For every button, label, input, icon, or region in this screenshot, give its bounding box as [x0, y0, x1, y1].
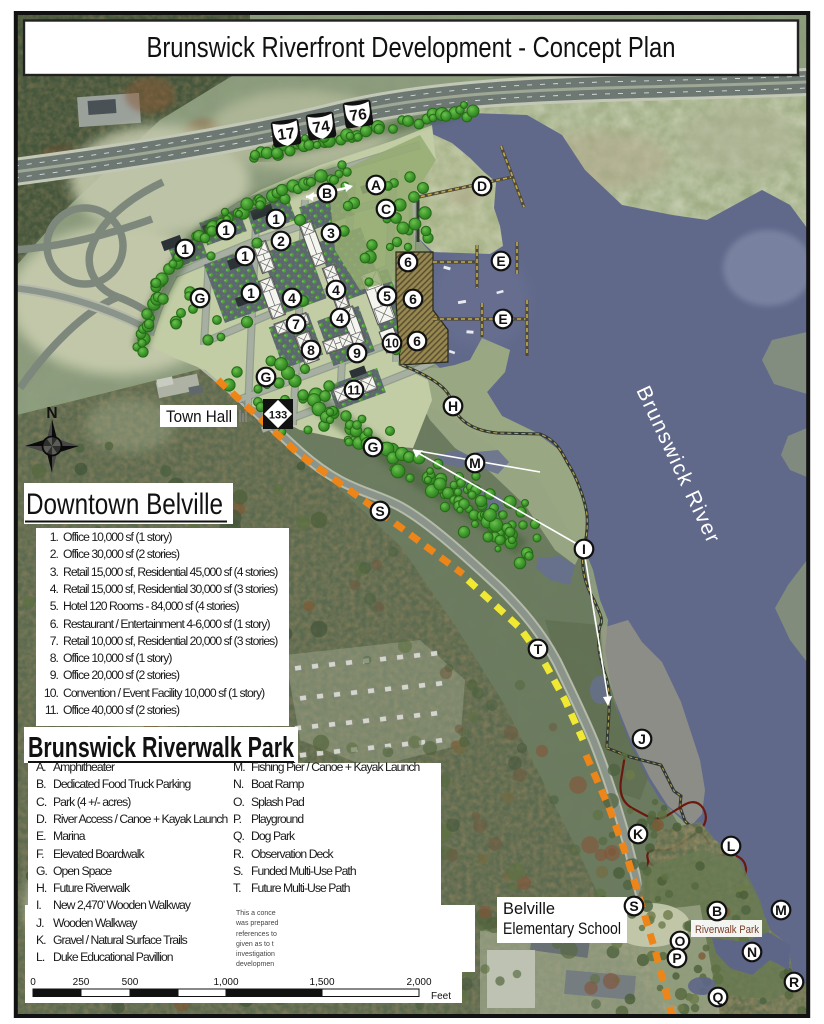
svg-text:New 2,470’ Wooden Walkway: New 2,470’ Wooden Walkway [53, 898, 192, 912]
svg-text:6: 6 [409, 291, 417, 307]
svg-text:9.: 9. [50, 668, 59, 682]
svg-text:E: E [496, 253, 505, 269]
svg-text:4.: 4. [50, 582, 59, 596]
svg-text:11.: 11. [45, 703, 59, 717]
svg-text:D: D [477, 178, 487, 194]
svg-text:Hotel 120 Rooms - 84,000 sf (4: Hotel 120 Rooms - 84,000 sf (4 stories) [63, 599, 240, 613]
svg-text:2: 2 [277, 233, 285, 249]
svg-text:Q: Q [713, 989, 724, 1005]
svg-text:6: 6 [404, 254, 412, 270]
svg-text:J: J [638, 731, 646, 747]
svg-text:Office 20,000 sf (2 stories): Office 20,000 sf (2 stories) [63, 668, 180, 682]
svg-text:C: C [381, 201, 391, 217]
svg-text:Playground: Playground [251, 812, 303, 826]
svg-text:F.: F. [36, 847, 44, 861]
svg-text:B: B [322, 185, 332, 201]
svg-text:4: 4 [332, 282, 340, 298]
svg-text:1: 1 [272, 211, 280, 227]
svg-text:R: R [789, 974, 799, 990]
svg-text:10.: 10. [44, 686, 59, 700]
svg-text:I: I [582, 541, 586, 557]
svg-text:B: B [712, 903, 722, 919]
svg-text:P: P [672, 950, 681, 966]
svg-text:K: K [633, 826, 643, 842]
svg-text:L.: L. [36, 950, 45, 964]
svg-text:8: 8 [307, 342, 315, 358]
svg-text:Downtown Belville: Downtown Belville [26, 488, 223, 521]
svg-text:Convention / Event Facility 10: Convention / Event Facility 10,000 sf (1… [63, 686, 265, 700]
svg-text:Retail 15,000 sf, Residential: Retail 15,000 sf, Residential 45,000 sf … [63, 565, 278, 579]
svg-text:T: T [534, 641, 543, 657]
svg-text:6: 6 [413, 333, 421, 349]
svg-text:I.: I. [36, 898, 41, 912]
svg-text:6.: 6. [50, 617, 59, 631]
svg-text:Office 40,000 sf (2 stories): Office 40,000 sf (2 stories) [63, 703, 180, 717]
svg-text:Amphitheater: Amphitheater [53, 760, 115, 774]
svg-text:references to: references to [236, 931, 277, 938]
svg-text:Open Space: Open Space [53, 864, 112, 878]
svg-text:Dedicated Food Truck Parking: Dedicated Food Truck Parking [53, 777, 191, 791]
svg-text:Office 10,000 sf (1 story): Office 10,000 sf (1 story) [63, 530, 172, 544]
svg-text:N: N [46, 405, 57, 422]
svg-text:C.: C. [36, 795, 47, 809]
svg-text:A.: A. [36, 760, 46, 774]
svg-text:River Access / Canoe + Kayak L: River Access / Canoe + Kayak Launch [53, 812, 228, 826]
svg-text:1: 1 [222, 222, 230, 238]
svg-text:Gravel / Natural Surface Trail: Gravel / Natural Surface Trails [53, 933, 188, 947]
svg-text:9: 9 [353, 345, 361, 361]
svg-text:Future Riverwalk: Future Riverwalk [53, 881, 131, 895]
svg-text:250: 250 [73, 977, 90, 988]
svg-text:T.: T. [233, 881, 241, 895]
svg-text:1,500: 1,500 [309, 977, 334, 988]
svg-text:Retail 10,000 sf, Residential: Retail 10,000 sf, Residential 20,000 sf … [63, 634, 278, 648]
svg-text:3: 3 [327, 225, 335, 241]
svg-text:4: 4 [336, 310, 344, 326]
svg-text:Office 10,000 sf (1 story): Office 10,000 sf (1 story) [63, 651, 172, 665]
svg-text:S: S [629, 898, 638, 914]
svg-text:2.: 2. [50, 547, 59, 561]
svg-text:Retail 15,000 sf, Residential: Retail 15,000 sf, Residential 30,000 sf … [63, 582, 278, 596]
svg-text:11: 11 [347, 384, 360, 398]
svg-text:S.: S. [233, 864, 243, 878]
svg-text:B.: B. [36, 777, 46, 791]
svg-text:Wooden Walkway: Wooden Walkway [53, 916, 138, 930]
svg-text:8.: 8. [50, 651, 59, 665]
svg-text:G: G [195, 290, 206, 306]
svg-text:Future Multi-Use Path: Future Multi-Use Path [251, 881, 350, 895]
svg-text:Brunswick Riverfront Developme: Brunswick Riverfront Development - Conce… [147, 32, 676, 64]
svg-text:Elementary School: Elementary School [503, 920, 621, 938]
svg-text:Boat Ramp: Boat Ramp [251, 777, 305, 791]
svg-text:Park (4 +/- acres): Park (4 +/- acres) [53, 795, 131, 809]
svg-text:Observation Deck: Observation Deck [251, 847, 335, 861]
svg-text:N: N [747, 944, 757, 960]
svg-text:developmen: developmen [236, 961, 274, 968]
svg-text:Restaurant / Entertainment 4-6: Restaurant / Entertainment 4-6,000 sf (1… [63, 617, 271, 631]
svg-text:Office 30,000 sf (2 stories): Office 30,000 sf (2 stories) [63, 547, 180, 561]
svg-text:J.: J. [36, 916, 44, 930]
svg-text:H: H [448, 398, 458, 414]
svg-text:This a conce: This a conce [236, 910, 276, 917]
svg-text:Elevated Boardwalk: Elevated Boardwalk [53, 847, 145, 861]
svg-text:L: L [727, 838, 736, 854]
svg-text:Q.: Q. [233, 829, 245, 843]
svg-text:1: 1 [181, 241, 189, 257]
svg-text:G: G [368, 439, 379, 455]
svg-text:G: G [261, 369, 272, 385]
svg-text:3.: 3. [50, 565, 59, 579]
svg-text:R.: R. [233, 847, 244, 861]
svg-text:E.: E. [36, 829, 46, 843]
svg-text:133: 133 [269, 410, 287, 422]
svg-text:500: 500 [122, 977, 139, 988]
svg-text:K.: K. [36, 933, 46, 947]
svg-text:Funded Multi-Use Path: Funded Multi-Use Path [251, 864, 356, 878]
svg-text:Town Hall: Town Hall [166, 408, 232, 426]
svg-text:4: 4 [288, 290, 296, 306]
svg-text:1: 1 [247, 285, 255, 301]
svg-text:S: S [375, 503, 384, 519]
svg-text:N.: N. [233, 777, 244, 791]
svg-text:1: 1 [241, 248, 249, 264]
svg-text:was prepared: was prepared [235, 920, 279, 927]
svg-text:Dog Park: Dog Park [251, 829, 296, 843]
svg-text:Marina: Marina [53, 829, 86, 843]
svg-text:G.: G. [36, 864, 48, 878]
svg-text:7.: 7. [50, 634, 59, 648]
svg-text:Duke Educational Pavillion: Duke Educational Pavillion [53, 950, 173, 964]
svg-text:D.: D. [36, 812, 47, 826]
svg-text:74: 74 [311, 118, 331, 137]
svg-text:10: 10 [385, 337, 399, 351]
svg-text:O.: O. [233, 795, 245, 809]
svg-text:76: 76 [348, 106, 368, 125]
svg-text:Belville: Belville [503, 900, 555, 918]
svg-text:Fishing Pier / Canoe + Kayak L: Fishing Pier / Canoe + Kayak Launch [251, 760, 419, 774]
svg-text:5: 5 [383, 288, 391, 304]
svg-text:Riverwalk Park: Riverwalk Park [695, 924, 759, 936]
svg-text:17: 17 [276, 125, 295, 144]
svg-text:1,000: 1,000 [213, 977, 238, 988]
svg-text:P.: P. [233, 812, 242, 826]
svg-text:M: M [775, 902, 787, 918]
svg-text:1.: 1. [50, 530, 59, 544]
svg-text:M: M [469, 455, 481, 471]
svg-text:given as to t: given as to t [236, 941, 274, 948]
svg-text:investigation: investigation [236, 951, 275, 958]
svg-text:E: E [498, 311, 507, 327]
svg-text:O: O [675, 933, 686, 949]
svg-text:0: 0 [30, 977, 36, 988]
svg-text:2,000: 2,000 [406, 977, 431, 988]
svg-text:M.: M. [233, 760, 245, 774]
svg-text:H.: H. [36, 881, 47, 895]
svg-text:A: A [371, 177, 381, 193]
svg-text:Feet: Feet [431, 991, 451, 1002]
svg-text:5.: 5. [50, 599, 59, 613]
svg-text:7: 7 [292, 316, 300, 332]
svg-text:Splash Pad: Splash Pad [251, 795, 304, 809]
